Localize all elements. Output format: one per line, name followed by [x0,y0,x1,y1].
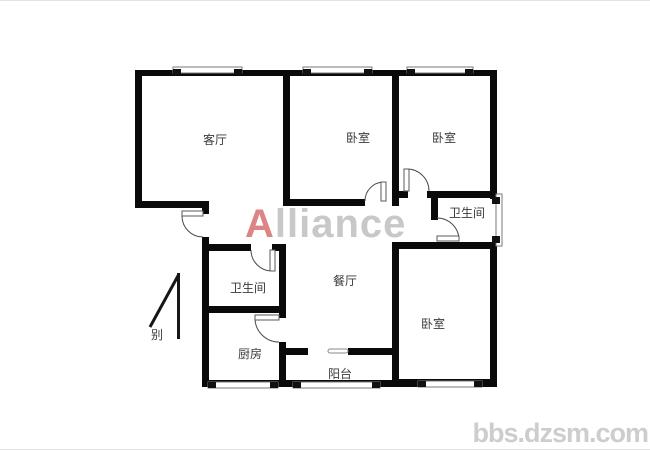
window-end-cap [474,381,482,387]
window-end-cap [208,382,216,388]
window-kitchen [208,382,278,388]
wall-living-room-bottom [135,201,209,208]
room-label-bathroom-upper: 卫生间 [449,206,485,220]
wall-bedroom-bottom-left [392,242,399,387]
wall-outer-left [135,70,142,208]
room-label-dining-room: 餐厅 [333,273,357,288]
room-label-balcony: 阳台 [328,366,352,381]
window-end-cap [234,69,242,75]
brand-watermark-rest: lliance [275,202,407,246]
door-swing-arc [182,216,203,237]
window-end-cap [492,236,500,243]
door-swing-arc [255,318,279,342]
window-bedroom-bottom [418,381,482,387]
window-end-cap [465,69,473,75]
wall-living-bedroom-divider [283,70,290,206]
room-label-bathroom-left: 卫生间 [230,281,266,295]
window-glass [418,381,482,387]
door-leaf [182,211,203,216]
door-leaf [437,236,459,241]
wall-outer-right-lower [490,243,497,387]
door-leaf [404,169,409,191]
wall-balcony-top-right [348,348,392,355]
wall-outer-right-upper [490,70,497,199]
window-end-cap [173,69,181,75]
site-watermark: bbs.dzsm.com [472,418,648,448]
doors-group [182,169,459,342]
door-leaf [255,315,279,320]
window-glass [293,382,380,388]
room-label-kitchen: 厨房 [238,346,262,361]
door-swing-arc [251,250,272,271]
room-label-living-room: 客厅 [203,132,227,147]
door-leaf [381,182,386,201]
room-labels-group: 客厅 卧室 卧室 卫生间 餐厅 卫生间 厨房 阳台 卧室 别 [151,130,485,381]
floor-plan-canvas: Alliance bbs.dzsm.com [0,0,650,450]
room-label-bedroom-top-right: 卧室 [432,130,456,145]
brand-watermark: Alliance [245,202,406,246]
window-end-cap [372,382,380,388]
window-end-cap [303,69,311,75]
room-label-bedroom-top-middle: 卧室 [346,130,370,145]
window-end-cap [418,381,426,387]
north-arrow-shaft [177,273,180,339]
wall-corridor-top-left [396,191,408,198]
window-balcony [293,382,380,388]
north-arrow-barb [150,274,179,327]
door-swing-arc [407,169,429,191]
door-kitchen [255,315,279,342]
wall-bedroom-middle-bottom [283,199,365,206]
door-bathroom-left [251,250,275,271]
room-label-bedroom-bottom: 卧室 [421,316,445,331]
window-glass [173,67,242,73]
balcony-sliding-panel [328,349,348,353]
wall-bedroom-bottom-top [392,242,497,249]
door-bedroom-top-right [404,169,429,191]
window-glass [208,382,278,388]
door-entry [182,211,203,237]
door-leaf [270,250,275,271]
door-bedroom-top-middle [365,182,386,201]
window-end-cap [492,197,500,204]
wall-bedrooms-divider [392,70,399,206]
window-end-cap [407,69,415,75]
window-end-cap [293,382,301,388]
wall-balcony-top-left [279,348,308,355]
window-glass [303,67,372,73]
wall-corridor-top-right [427,191,490,198]
window-bathroom-right [492,194,502,246]
window-end-cap [270,382,278,388]
door-bathroom-right [437,218,459,241]
wall-bathroom-left-top-a [203,244,251,251]
brand-watermark-letter-a: A [245,202,275,246]
window-end-cap [364,69,372,75]
compass-label: 别 [151,328,163,342]
wall-bathroom-kitchen-divider [203,306,286,313]
floor-plan: Alliance bbs.dzsm.com [0,1,650,450]
window-glass [407,67,473,73]
